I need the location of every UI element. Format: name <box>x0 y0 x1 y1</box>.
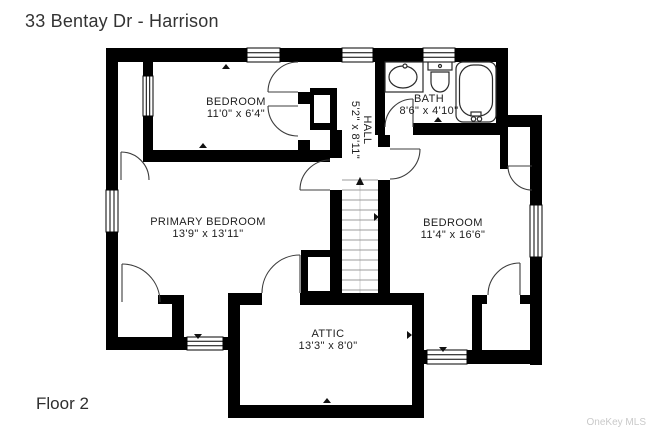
room-label-bedroom-top: BEDROOM <box>206 96 266 108</box>
door-closet-bottom-left <box>122 264 160 302</box>
stairs-up-arrow <box>356 177 364 185</box>
door-closet-bottom-right <box>488 263 520 295</box>
door-bedroom-right <box>390 149 420 179</box>
room-label-primary: PRIMARY BEDROOM <box>150 216 266 228</box>
room-dims-primary: 13'9" x 13'11" <box>172 228 243 240</box>
stairs <box>342 177 378 293</box>
room-label-bedroom-right: BEDROOM <box>423 217 483 229</box>
floorplan-page: BEDROOM 11'0" x 6'4" BATH 8'6" x 4'10" H… <box>0 0 650 432</box>
sink-vanity <box>385 62 423 92</box>
door-bedroom1-upper <box>268 62 298 92</box>
window-top-bedroom <box>247 48 280 62</box>
floorplan-drawing: BEDROOM 11'0" x 6'4" BATH 8'6" x 4'10" H… <box>0 0 650 432</box>
window-bottom-left <box>187 337 223 350</box>
window-bath-top <box>423 48 455 62</box>
room-label-bath: BATH <box>414 93 444 105</box>
watermark: OneKey MLS <box>587 417 646 428</box>
room-label-attic: ATTIC <box>312 328 345 340</box>
room-dims-bath: 8'6" x 4'10" <box>399 105 458 117</box>
door-attic <box>262 255 300 293</box>
room-dims-bedroom-top: 11'0" x 6'4" <box>207 108 265 120</box>
window-right-wall <box>530 205 542 257</box>
room-dims-attic: 13'3" x 8'0" <box>298 340 357 352</box>
window-bottom-right <box>427 350 467 364</box>
room-dims-bedroom-right: 11'4" x 16'6" <box>421 229 486 241</box>
closet-slider <box>143 76 153 116</box>
floor-label: Floor 2 <box>36 394 89 414</box>
toilet <box>428 62 452 92</box>
room-dims-hall: 5'2" x 8'11" <box>349 101 361 159</box>
window-hall-top <box>342 48 373 62</box>
window-left-wall <box>106 190 118 232</box>
door-primary-bedroom <box>300 160 330 190</box>
page-title: 33 Bentay Dr - Harrison <box>25 11 219 32</box>
door-bedroom1-lower <box>268 106 298 136</box>
bathtub <box>456 62 496 122</box>
door-closet-top-right <box>508 166 532 190</box>
room-label-hall: HALL <box>361 115 373 144</box>
